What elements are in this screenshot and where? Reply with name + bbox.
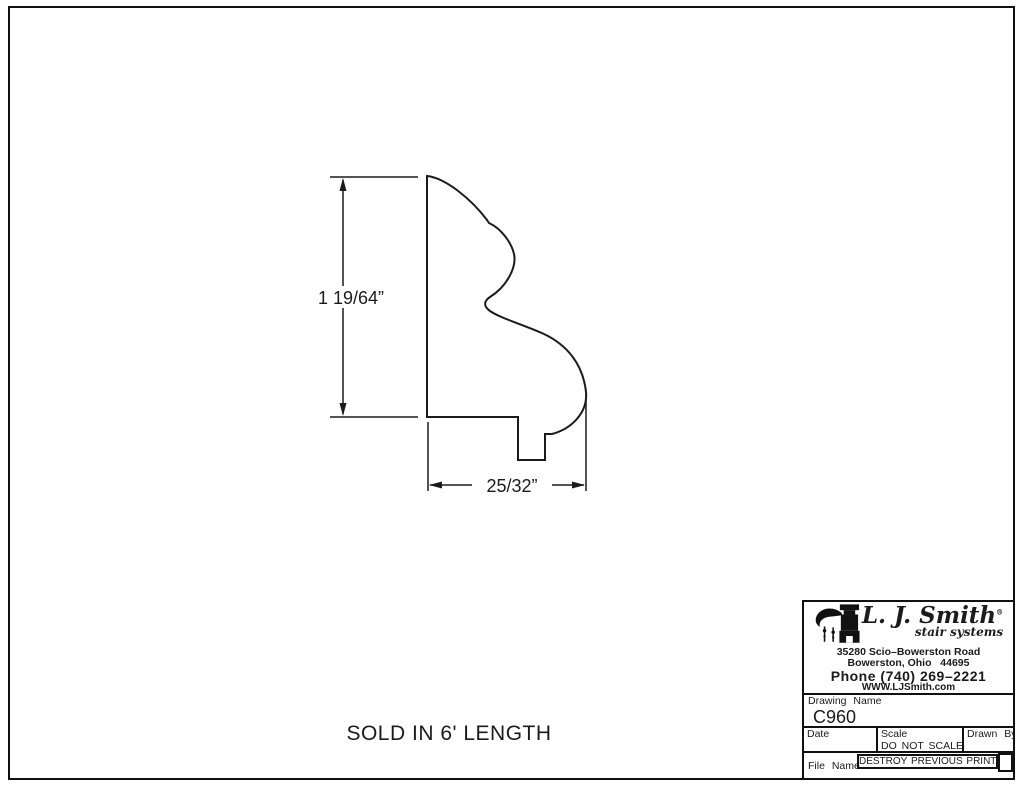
sold-length-note: SOLD IN 6' LENGTH <box>309 722 589 746</box>
drawn-by-cell: Drawn By <box>964 728 1013 751</box>
logo-text: L. J. Smith® stair systems <box>862 603 1003 638</box>
file-name-label: File Name <box>808 760 860 772</box>
date-cell: Date <box>804 728 878 751</box>
arrow-up-icon <box>340 178 347 191</box>
newel-post-icon <box>814 604 860 647</box>
lj-smith-logo: L. J. Smith® stair systems <box>804 603 1013 647</box>
scale-cell: Scale DO NOT SCALE <box>878 728 964 751</box>
scale-value: DO NOT SCALE <box>881 740 959 751</box>
arrow-right-icon <box>572 482 585 489</box>
phone-line: Phone (740) 269–2221 <box>804 669 1013 683</box>
title-block: L. J. Smith® stair systems 35280 Scio–Bo… <box>802 600 1015 780</box>
molding-profile-outline <box>427 176 586 460</box>
width-dimension-label: 25/32” <box>472 477 552 495</box>
registered-mark-icon: ® <box>996 607 1003 616</box>
arrow-down-icon <box>340 403 347 416</box>
file-name-row: File Name DESTROY PREVIOUS PRINTS <box>804 753 1013 778</box>
title-block-grid-row: Date Scale DO NOT SCALE Drawn By <box>804 728 1013 753</box>
logo-section: L. J. Smith® stair systems 35280 Scio–Bo… <box>804 602 1013 695</box>
date-label: Date <box>807 729 873 740</box>
height-dimension-label: 1 19/64” <box>311 289 391 307</box>
destroy-prints-note: DESTROY PREVIOUS PRINTS <box>857 754 998 769</box>
drawn-by-label: Drawn By <box>967 729 1010 740</box>
drawing-name-value: C960 <box>813 708 1009 726</box>
drawing-name-section: Drawing Name C960 <box>804 695 1013 728</box>
spare-box <box>998 753 1013 772</box>
arrow-left-icon <box>429 482 442 489</box>
drawing-name-label: Drawing Name <box>808 696 1009 707</box>
website-line: WWW.LJSmith.com <box>804 683 1013 693</box>
scale-label: Scale <box>881 729 959 740</box>
drawing-sheet: 1 19/64” 25/32” SOLD IN 6' LENGTH <box>0 0 1024 791</box>
